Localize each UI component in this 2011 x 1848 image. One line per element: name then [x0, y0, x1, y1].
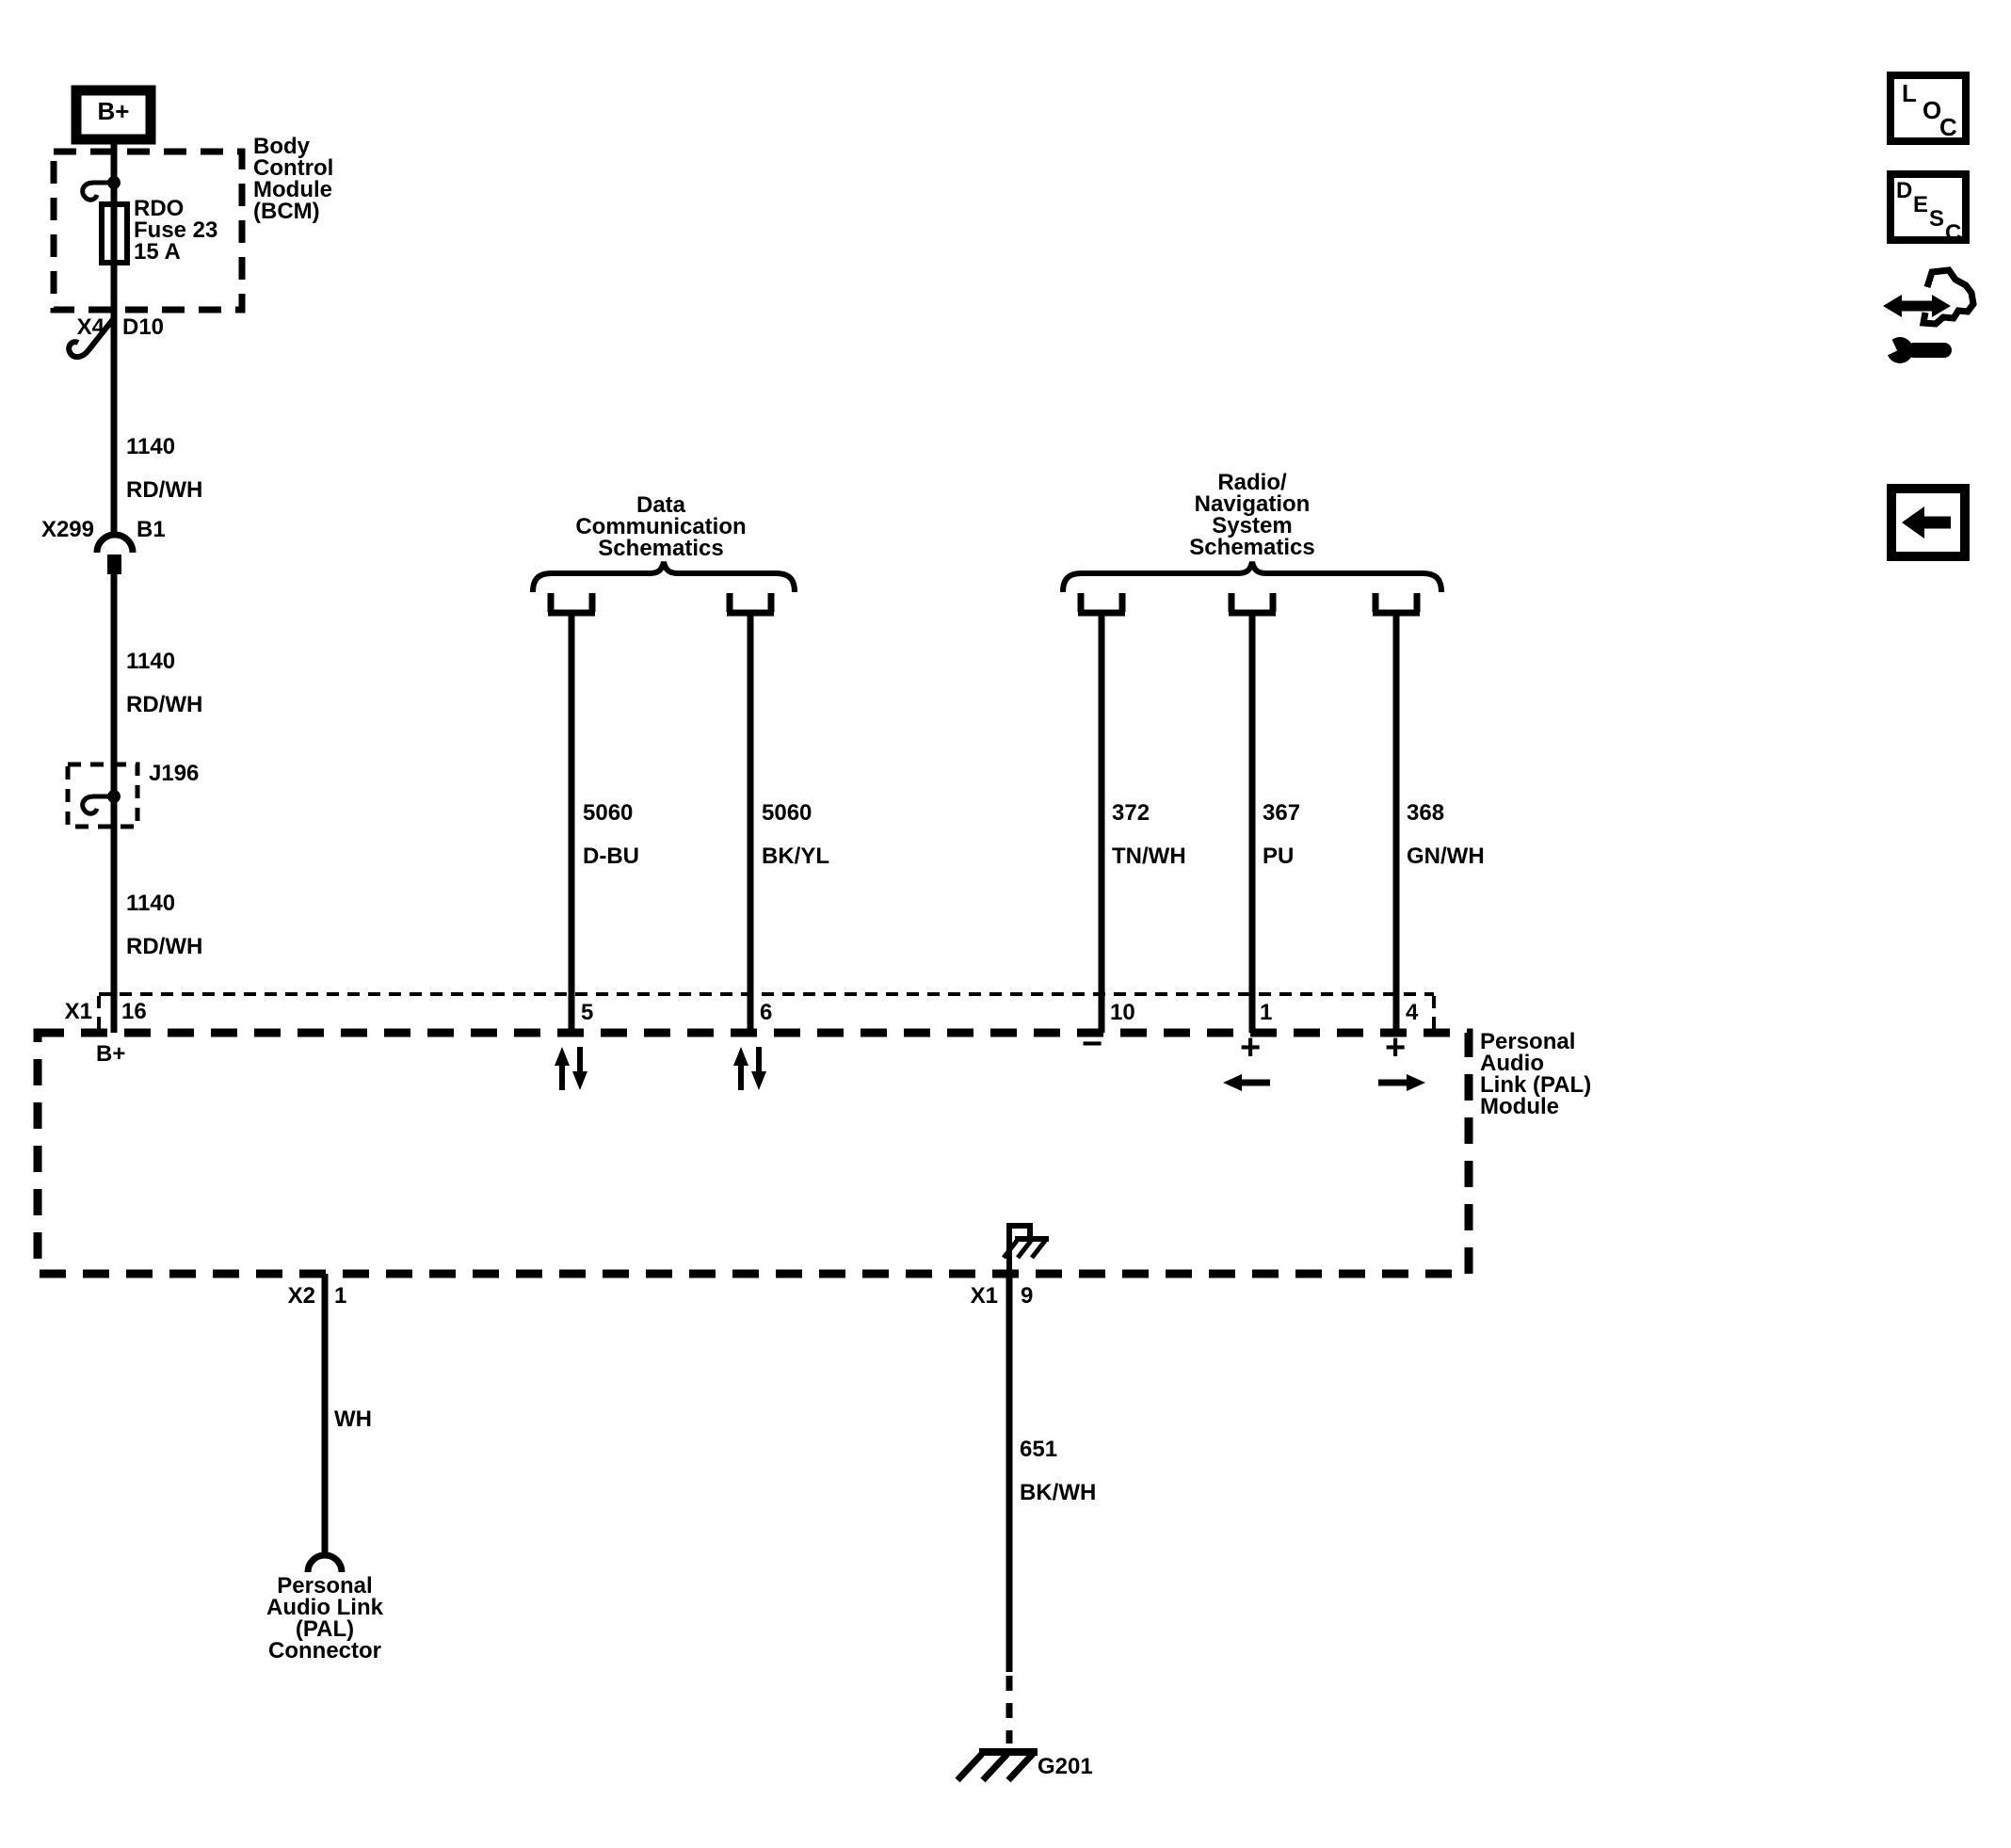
back-arrow-icon	[1896, 493, 1960, 552]
pal-module-box	[38, 1033, 1469, 1274]
wire-label-5060-bkyl: 5060 BK/YL	[762, 780, 829, 889]
pin1-left-arrow-icon	[1223, 1074, 1270, 1091]
module-b-plus-label: B+	[96, 1043, 125, 1065]
wire-color: RD/WH	[126, 479, 202, 501]
connector-x2-label: X2	[268, 1285, 315, 1307]
bcm-label: Body Control Module (BCM)	[253, 136, 333, 222]
wire-wh-label: WH	[334, 1408, 372, 1430]
data-comm-header: Data Communication Schematics	[520, 494, 802, 559]
pin-9-label: 9	[1021, 1285, 1033, 1307]
module-internal-ground-icon	[1004, 1226, 1049, 1274]
loc-letter: L	[1902, 82, 1917, 104]
desc-button[interactable]: D E S C	[1887, 170, 1970, 244]
wire-label-372-tnwh: 372 TN/WH	[1112, 780, 1186, 889]
repair-wrench-icon	[1881, 264, 1979, 371]
fuse-label: RDO Fuse 23 15 A	[134, 198, 217, 263]
pin-4-label: 4	[1406, 1002, 1418, 1023]
connector-x1-label: X1	[40, 1001, 92, 1022]
data-comm-brace	[533, 562, 795, 592]
wiring-diagram-page: B+ Body Control Module (BCM) RDO Fuse 23…	[0, 0, 2011, 1848]
battery-feed-label: B+	[76, 101, 151, 122]
pal-module-label: Personal Audio Link (PAL) Module	[1480, 1031, 1591, 1117]
x299-connector-symbol	[97, 535, 133, 574]
wire-color: TN/WH	[1112, 845, 1186, 867]
wire-label-1140-b: 1140 RD/WH	[126, 629, 202, 737]
connector-x299-label: X299	[26, 519, 94, 540]
j196-splice-symbol	[68, 764, 137, 827]
connector-x4-label: X4	[53, 316, 105, 338]
pal-connector-label: Personal Audio Link (PAL) Connector	[221, 1575, 428, 1662]
desc-letter: D	[1896, 180, 1912, 202]
pin-10-label: 10	[1110, 1002, 1135, 1023]
desc-letter: C	[1945, 222, 1961, 245]
ground-g201-label: G201	[1038, 1756, 1093, 1777]
circuit-number: 367	[1263, 802, 1300, 824]
wire-label-1140-c: 1140 RD/WH	[126, 871, 202, 979]
loc-button[interactable]: L O C	[1887, 72, 1970, 145]
wire-color: BK/WH	[1020, 1482, 1096, 1503]
radio-nav-header: Radio/ Navigation System Schematics	[1158, 472, 1346, 558]
wire-label-651-bkwh: 651 BK/WH	[1020, 1417, 1096, 1525]
pin-1-out-label: 1	[334, 1285, 346, 1307]
desc-letter: S	[1929, 208, 1944, 231]
connector-x1-bottom-label: X1	[949, 1285, 998, 1307]
wire-color: D-BU	[583, 845, 639, 867]
repair-instructions-button[interactable]	[1881, 264, 1979, 376]
wire-label-368-gnwh: 368 GN/WH	[1407, 780, 1485, 889]
splice-j196-label: J196	[149, 763, 199, 784]
wire-color: BK/YL	[762, 845, 829, 867]
wire-label-1140-a: 1140 RD/WH	[126, 414, 202, 522]
pin-6-label: 6	[760, 1002, 772, 1023]
wire-color: PU	[1263, 845, 1300, 867]
circuit-number: 368	[1407, 802, 1485, 824]
pin-4-plus-sign: +	[1385, 1032, 1406, 1064]
circuit-number: 1140	[126, 892, 202, 914]
pin4-right-arrow-icon	[1378, 1074, 1425, 1091]
pin-10-minus-sign: −	[1082, 1028, 1102, 1060]
loc-letter: C	[1939, 116, 1957, 138]
wire-color: GN/WH	[1407, 845, 1485, 867]
wire-color: RD/WH	[126, 694, 202, 715]
circuit-number: 5060	[762, 802, 829, 824]
radio-nav-brace	[1063, 562, 1441, 592]
circuit-number: 5060	[583, 802, 639, 824]
pin-16-label: 16	[121, 1001, 147, 1022]
pin-b1-label: B1	[137, 519, 166, 540]
circuit-number: 372	[1112, 802, 1186, 824]
circuit-number: 1140	[126, 651, 202, 672]
circuit-number: 651	[1020, 1438, 1096, 1460]
back-button[interactable]	[1887, 484, 1970, 561]
wire-label-367-pu: 367 PU	[1263, 780, 1300, 889]
pin-5-label: 5	[581, 1002, 593, 1023]
pin-1-label: 1	[1260, 1002, 1272, 1023]
pin6-bidirectional-arrow-icon	[733, 1047, 766, 1090]
g201-ground-icon	[957, 1752, 1038, 1780]
desc-letter: E	[1913, 194, 1928, 217]
wire-label-5060-dbu: 5060 D-BU	[583, 780, 639, 889]
schematic-linework	[0, 0, 2011, 1848]
pin5-bidirectional-arrow-icon	[555, 1047, 587, 1090]
circuit-number: 1140	[126, 436, 202, 458]
offpage-connector-symbols	[548, 593, 1420, 613]
pin-d10-label: D10	[122, 316, 164, 338]
pin-1-plus-sign: +	[1240, 1032, 1261, 1064]
wire-color: RD/WH	[126, 936, 202, 957]
